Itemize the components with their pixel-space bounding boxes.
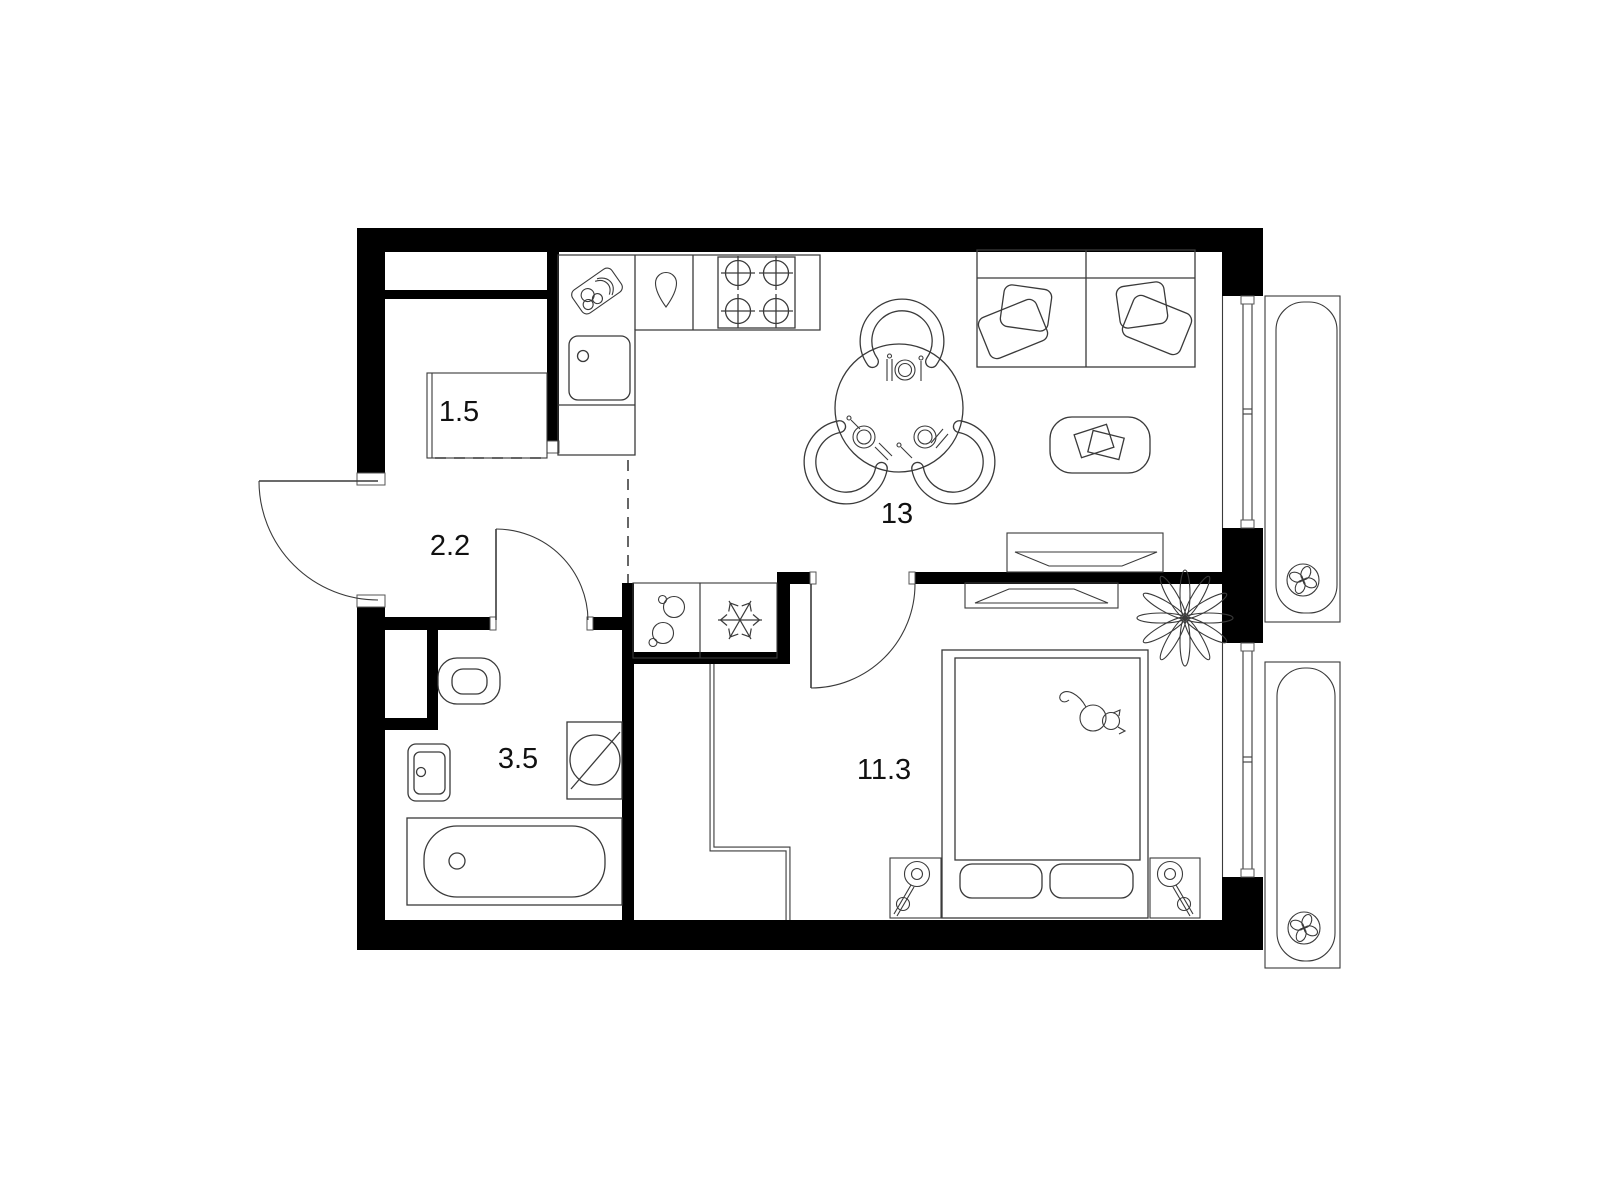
chair-icon — [866, 305, 938, 362]
nightstand-left — [890, 858, 941, 918]
balcony-lower — [1265, 662, 1340, 968]
cutting-board-icon — [569, 266, 624, 316]
stove-icon — [718, 256, 795, 328]
nightstand-right — [1150, 858, 1200, 918]
plant-icon — [1137, 570, 1233, 666]
bed-icon — [942, 650, 1148, 918]
pots-icon — [649, 596, 685, 647]
room-label-bathroom: 3.5 — [498, 743, 538, 775]
coffee-table-icon — [1050, 417, 1150, 473]
bathroom-door — [496, 529, 588, 620]
bedroom-door — [811, 584, 915, 688]
room-label-bedroom: 11.3 — [857, 754, 911, 786]
nightstand-lamp-icon — [1158, 862, 1183, 887]
toilet-icon — [438, 658, 500, 704]
washing-machine-icon — [567, 722, 622, 799]
fan-icon — [1288, 912, 1320, 944]
fan-icon — [1287, 564, 1319, 596]
chair-icon — [913, 422, 1004, 513]
room-label-hallway: 2.2 — [430, 530, 470, 562]
bathtub-icon — [407, 818, 622, 905]
zone-dashed-lines — [435, 458, 628, 583]
kettle-icon — [656, 273, 677, 308]
tv-stand-bedroom — [965, 583, 1118, 608]
floor-plan-page: 1.5 2.2 3.5 13 11.3 — [0, 0, 1600, 1200]
floor-plan: 1.5 2.2 3.5 13 11.3 — [0, 0, 1600, 1200]
washbasin-icon — [408, 744, 450, 801]
cat-icon — [1060, 692, 1125, 734]
place-setting — [897, 426, 948, 458]
fridge-snowflake-icon — [718, 600, 762, 639]
place-setting — [887, 354, 923, 381]
nightstand-lamp-icon — [905, 862, 930, 887]
bedroom-wardrobe-partition — [712, 664, 788, 920]
sofa-icon — [976, 250, 1195, 367]
kitchen-sink-icon — [569, 336, 630, 400]
chair-icon — [795, 422, 886, 513]
bedroom-window — [1223, 643, 1255, 877]
room-label-kitchen-living: 13 — [881, 498, 913, 530]
living-room-window — [1223, 296, 1255, 528]
room-label-wardrobe: 1.5 — [439, 396, 479, 428]
dining-table-icon — [795, 305, 1004, 513]
balcony-upper — [1265, 296, 1340, 622]
tv-stand-living — [1007, 533, 1163, 572]
